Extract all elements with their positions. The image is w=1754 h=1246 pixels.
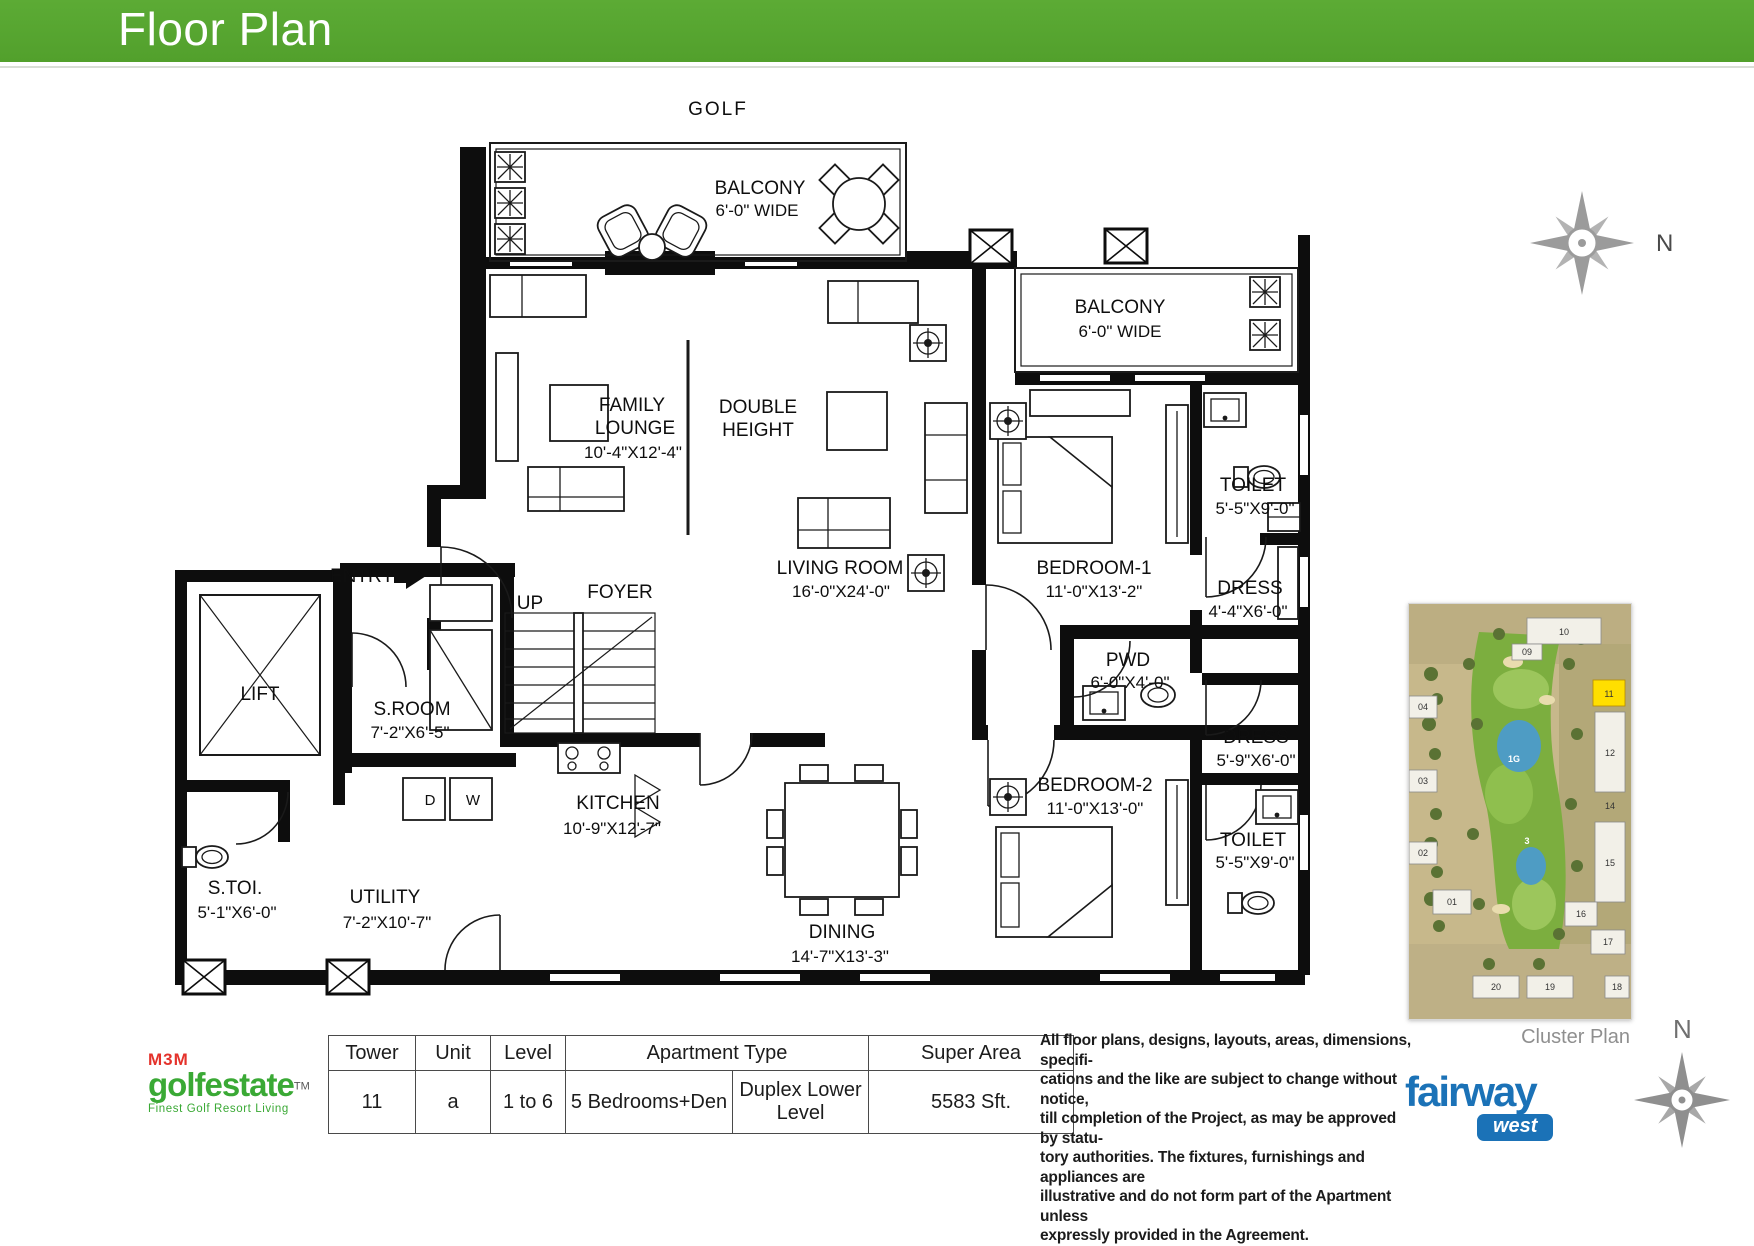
- pond-2: [1516, 847, 1546, 885]
- shaft-box-3: [183, 960, 225, 994]
- disclaimer-line: All floor plans, designs, layouts, areas…: [1040, 1031, 1412, 1070]
- disclaimer-text: All floor plans, designs, layouts, areas…: [1040, 1031, 1412, 1246]
- kitchen: KITCHEN 10'-9"X12'-7": [558, 733, 752, 838]
- bedroom1-bed: [998, 437, 1112, 543]
- compass-rose-top: N: [1520, 185, 1700, 305]
- m3m-golfestate-logo: M3M golfestateTM Finest Golf Resort Livi…: [148, 1050, 348, 1115]
- pwd: PWD 6'-0"X4'-0": [1074, 641, 1175, 720]
- m3m-tm: TM: [294, 1081, 310, 1093]
- room-label-balcony-top: BALCONY: [715, 178, 806, 199]
- disclaimer-line: tory authorities. The fixtures, furnishi…: [1040, 1148, 1412, 1187]
- cluster-plan-panel: 10 09 11 12 14 15 16 17 18 04 03 02 01 2…: [1408, 603, 1632, 1020]
- pond-1: [1497, 720, 1541, 772]
- dining-table: [767, 765, 917, 915]
- svg-text:DRESS: DRESS: [1223, 727, 1288, 748]
- room-label-balcony-right: BALCONY: [1075, 297, 1166, 318]
- room-label-living-room: LIVING ROOM: [777, 558, 904, 579]
- svg-text:14'-7"X13'-3": 14'-7"X13'-3": [791, 947, 889, 966]
- svg-text:DRESS: DRESS: [1217, 578, 1282, 599]
- cell-level: 1 to 6: [491, 1071, 566, 1134]
- cluster-label-1g: 1G: [1508, 754, 1520, 764]
- svg-text:5'-5"X9'-0": 5'-5"X9'-0": [1215, 853, 1294, 872]
- ceiling-target-1: [910, 325, 946, 361]
- svg-text:HEIGHT: HEIGHT: [722, 420, 794, 441]
- svg-text:ENTRY: ENTRY: [330, 566, 394, 587]
- svg-text:DOUBLE: DOUBLE: [719, 397, 797, 418]
- cluster-num-01: 01: [1447, 897, 1457, 907]
- cluster-plan-map: 10 09 11 12 14 15 16 17 18 04 03 02 01 2…: [1409, 604, 1631, 1019]
- svg-text:BEDROOM-1: BEDROOM-1: [1036, 558, 1151, 579]
- ceiling-target-4: [990, 779, 1026, 815]
- balcony-lounge-chairs: [594, 202, 710, 261]
- svg-text:10'-9"X12'-7": 10'-9"X12'-7": [563, 819, 661, 838]
- balcony-right: BALCONY 6'-0" WIDE: [1015, 268, 1298, 372]
- shaft-box-1: [970, 230, 1012, 264]
- header-divider: [0, 66, 1754, 68]
- cell-unit: a: [416, 1071, 491, 1134]
- svg-text:7'-2"X10'-7": 7'-2"X10'-7": [343, 913, 432, 932]
- cell-type-main: 5 Bedrooms+Den: [566, 1071, 733, 1134]
- cluster-plan-caption: Cluster Plan: [1408, 1026, 1630, 1049]
- toilet2: TOILET 5'-5"X9'-0": [1206, 785, 1298, 914]
- cluster-num-18: 18: [1612, 982, 1622, 992]
- disclaimer-line: illustrative and do not form part of the…: [1040, 1187, 1412, 1226]
- m3m-golfestate-name: golfestate: [148, 1066, 294, 1103]
- svg-text:PWD: PWD: [1106, 650, 1150, 671]
- s-room: S.ROOM 7'-2"X6'-5": [352, 585, 492, 742]
- cluster-num-19: 19: [1545, 982, 1555, 992]
- cluster-num-15: 15: [1605, 858, 1615, 868]
- cluster-num-03: 03: [1418, 776, 1428, 786]
- svg-text:5'-5"X9'-0": 5'-5"X9'-0": [1215, 499, 1294, 518]
- floor-plan-drawing: BALCONY 6'-0" WIDE GOLF BALCONY 6'-0" WI…: [160, 85, 1310, 1015]
- compass-n-top: N: [1656, 230, 1673, 257]
- svg-text:BEDROOM-2: BEDROOM-2: [1037, 775, 1152, 796]
- page-header: Floor Plan: [0, 0, 1754, 62]
- up-label: UP: [517, 593, 543, 614]
- cluster-num-12: 12: [1605, 748, 1615, 758]
- room-dim-balcony-top: 6'-0" WIDE: [716, 201, 799, 220]
- room-dim-living-room: 16'-0"X24'-0": [792, 582, 890, 601]
- dress1: DRESS 4'-4"X6'-0": [1208, 547, 1298, 621]
- svg-text:LIFT: LIFT: [240, 684, 279, 705]
- disclaimer-line: expressly provided in the Agreement.: [1040, 1226, 1412, 1246]
- compass-rose-bottom: N: [1625, 1012, 1754, 1152]
- living-room: LIVING ROOM 16'-0"X24'-0": [777, 281, 967, 601]
- room-dim-balcony-right: 6'-0" WIDE: [1079, 322, 1162, 341]
- apartment-spec-table: Tower Unit Level Apartment Type Super Ar…: [328, 1035, 1074, 1134]
- stove-icon: [558, 743, 620, 773]
- lift: LIFT: [200, 595, 320, 755]
- svg-text:7'-2"X6'-5": 7'-2"X6'-5": [370, 723, 449, 742]
- disclaimer-line: cations and the like are subject to chan…: [1040, 1070, 1412, 1109]
- golf-label: GOLF: [688, 99, 748, 120]
- fairway-west-badge: west: [1477, 1114, 1553, 1141]
- room-label-family-lounge-2: LOUNGE: [595, 418, 675, 439]
- bedroom2-bed: [996, 827, 1112, 937]
- utility: D W UTILITY 7'-2"X10'-7": [343, 778, 500, 970]
- balcony-round-table: [819, 164, 898, 243]
- balcony-top: BALCONY 6'-0" WIDE: [490, 143, 906, 261]
- svg-text:UTILITY: UTILITY: [350, 887, 421, 908]
- svg-text:W: W: [466, 792, 481, 809]
- header-level: Level: [491, 1036, 566, 1071]
- bedroom1: BEDROOM-1 11'-0"X13'-2": [986, 390, 1188, 650]
- page-title: Floor Plan: [118, 2, 333, 56]
- svg-text:KITCHEN: KITCHEN: [576, 793, 659, 814]
- cell-type-sub: Duplex Lower Level: [733, 1071, 869, 1134]
- cluster-num-14: 14: [1605, 801, 1615, 811]
- foyer-label: FOYER: [587, 582, 652, 603]
- room-dim-family-lounge: 10'-4"X12'-4": [584, 443, 682, 462]
- svg-text:5'-9"X6'-0": 5'-9"X6'-0": [1216, 751, 1295, 770]
- svg-text:TOILET: TOILET: [1220, 830, 1287, 851]
- m3m-tagline: Finest Golf Resort Living: [148, 1103, 348, 1115]
- svg-text:S.ROOM: S.ROOM: [373, 699, 450, 720]
- svg-text:DINING: DINING: [809, 922, 876, 943]
- cluster-num-17: 17: [1603, 937, 1613, 947]
- bedroom2: BEDROOM-2 11'-0"X13'-0": [988, 740, 1188, 937]
- svg-text:4'-4"X6'-0": 4'-4"X6'-0": [1208, 602, 1287, 621]
- cluster-num-02: 02: [1418, 848, 1428, 858]
- svg-text:TOILET: TOILET: [1220, 475, 1287, 496]
- svg-text:S.TOI.: S.TOI.: [208, 878, 263, 899]
- svg-text:D: D: [425, 792, 436, 809]
- dining: DINING 14'-7"X13'-3": [767, 765, 917, 966]
- header-apartment-type: Apartment Type: [566, 1036, 869, 1071]
- compass-n-bottom: N: [1673, 1014, 1692, 1044]
- cluster-num-09: 09: [1522, 647, 1532, 657]
- spec-table-header-row: Tower Unit Level Apartment Type Super Ar…: [329, 1036, 1074, 1071]
- double-height: DOUBLE HEIGHT: [719, 397, 797, 441]
- family-lounge: FAMILY LOUNGE 10'-4"X12'-4": [490, 275, 682, 511]
- shaft-box-2: [1105, 229, 1147, 263]
- fairway-west-logo: fairway west: [1405, 1072, 1585, 1141]
- svg-text:11'-0"X13'-0": 11'-0"X13'-0": [1047, 799, 1144, 818]
- header-unit: Unit: [416, 1036, 491, 1071]
- fairway-wordmark: fairway: [1405, 1072, 1585, 1112]
- cluster-num-11: 11: [1604, 689, 1613, 699]
- disclaimer-line: till completion of the Project, as may b…: [1040, 1109, 1412, 1148]
- ceiling-target-2: [908, 555, 944, 591]
- cluster-num-04: 04: [1418, 702, 1428, 712]
- shaft-box-4: [327, 960, 369, 994]
- ceiling-target-3: [990, 403, 1026, 439]
- stairs: [505, 613, 655, 733]
- spec-table-data-row: 11 a 1 to 6 5 Bedrooms+Den Duplex Lower …: [329, 1071, 1074, 1134]
- cluster-num-16: 16: [1576, 909, 1586, 919]
- room-label-family-lounge-1: FAMILY: [599, 395, 665, 416]
- svg-text:6'-0"X4'-0": 6'-0"X4'-0": [1090, 673, 1169, 692]
- cluster-label-3: 3: [1524, 836, 1529, 846]
- cluster-num-10: 10: [1559, 627, 1569, 637]
- svg-text:11'-0"X13'-2": 11'-0"X13'-2": [1046, 582, 1143, 601]
- cluster-num-20: 20: [1491, 982, 1501, 992]
- svg-text:5'-1"X6'-0": 5'-1"X6'-0": [197, 903, 276, 922]
- s-toi: S.TOI. 5'-1"X6'-0": [182, 792, 288, 922]
